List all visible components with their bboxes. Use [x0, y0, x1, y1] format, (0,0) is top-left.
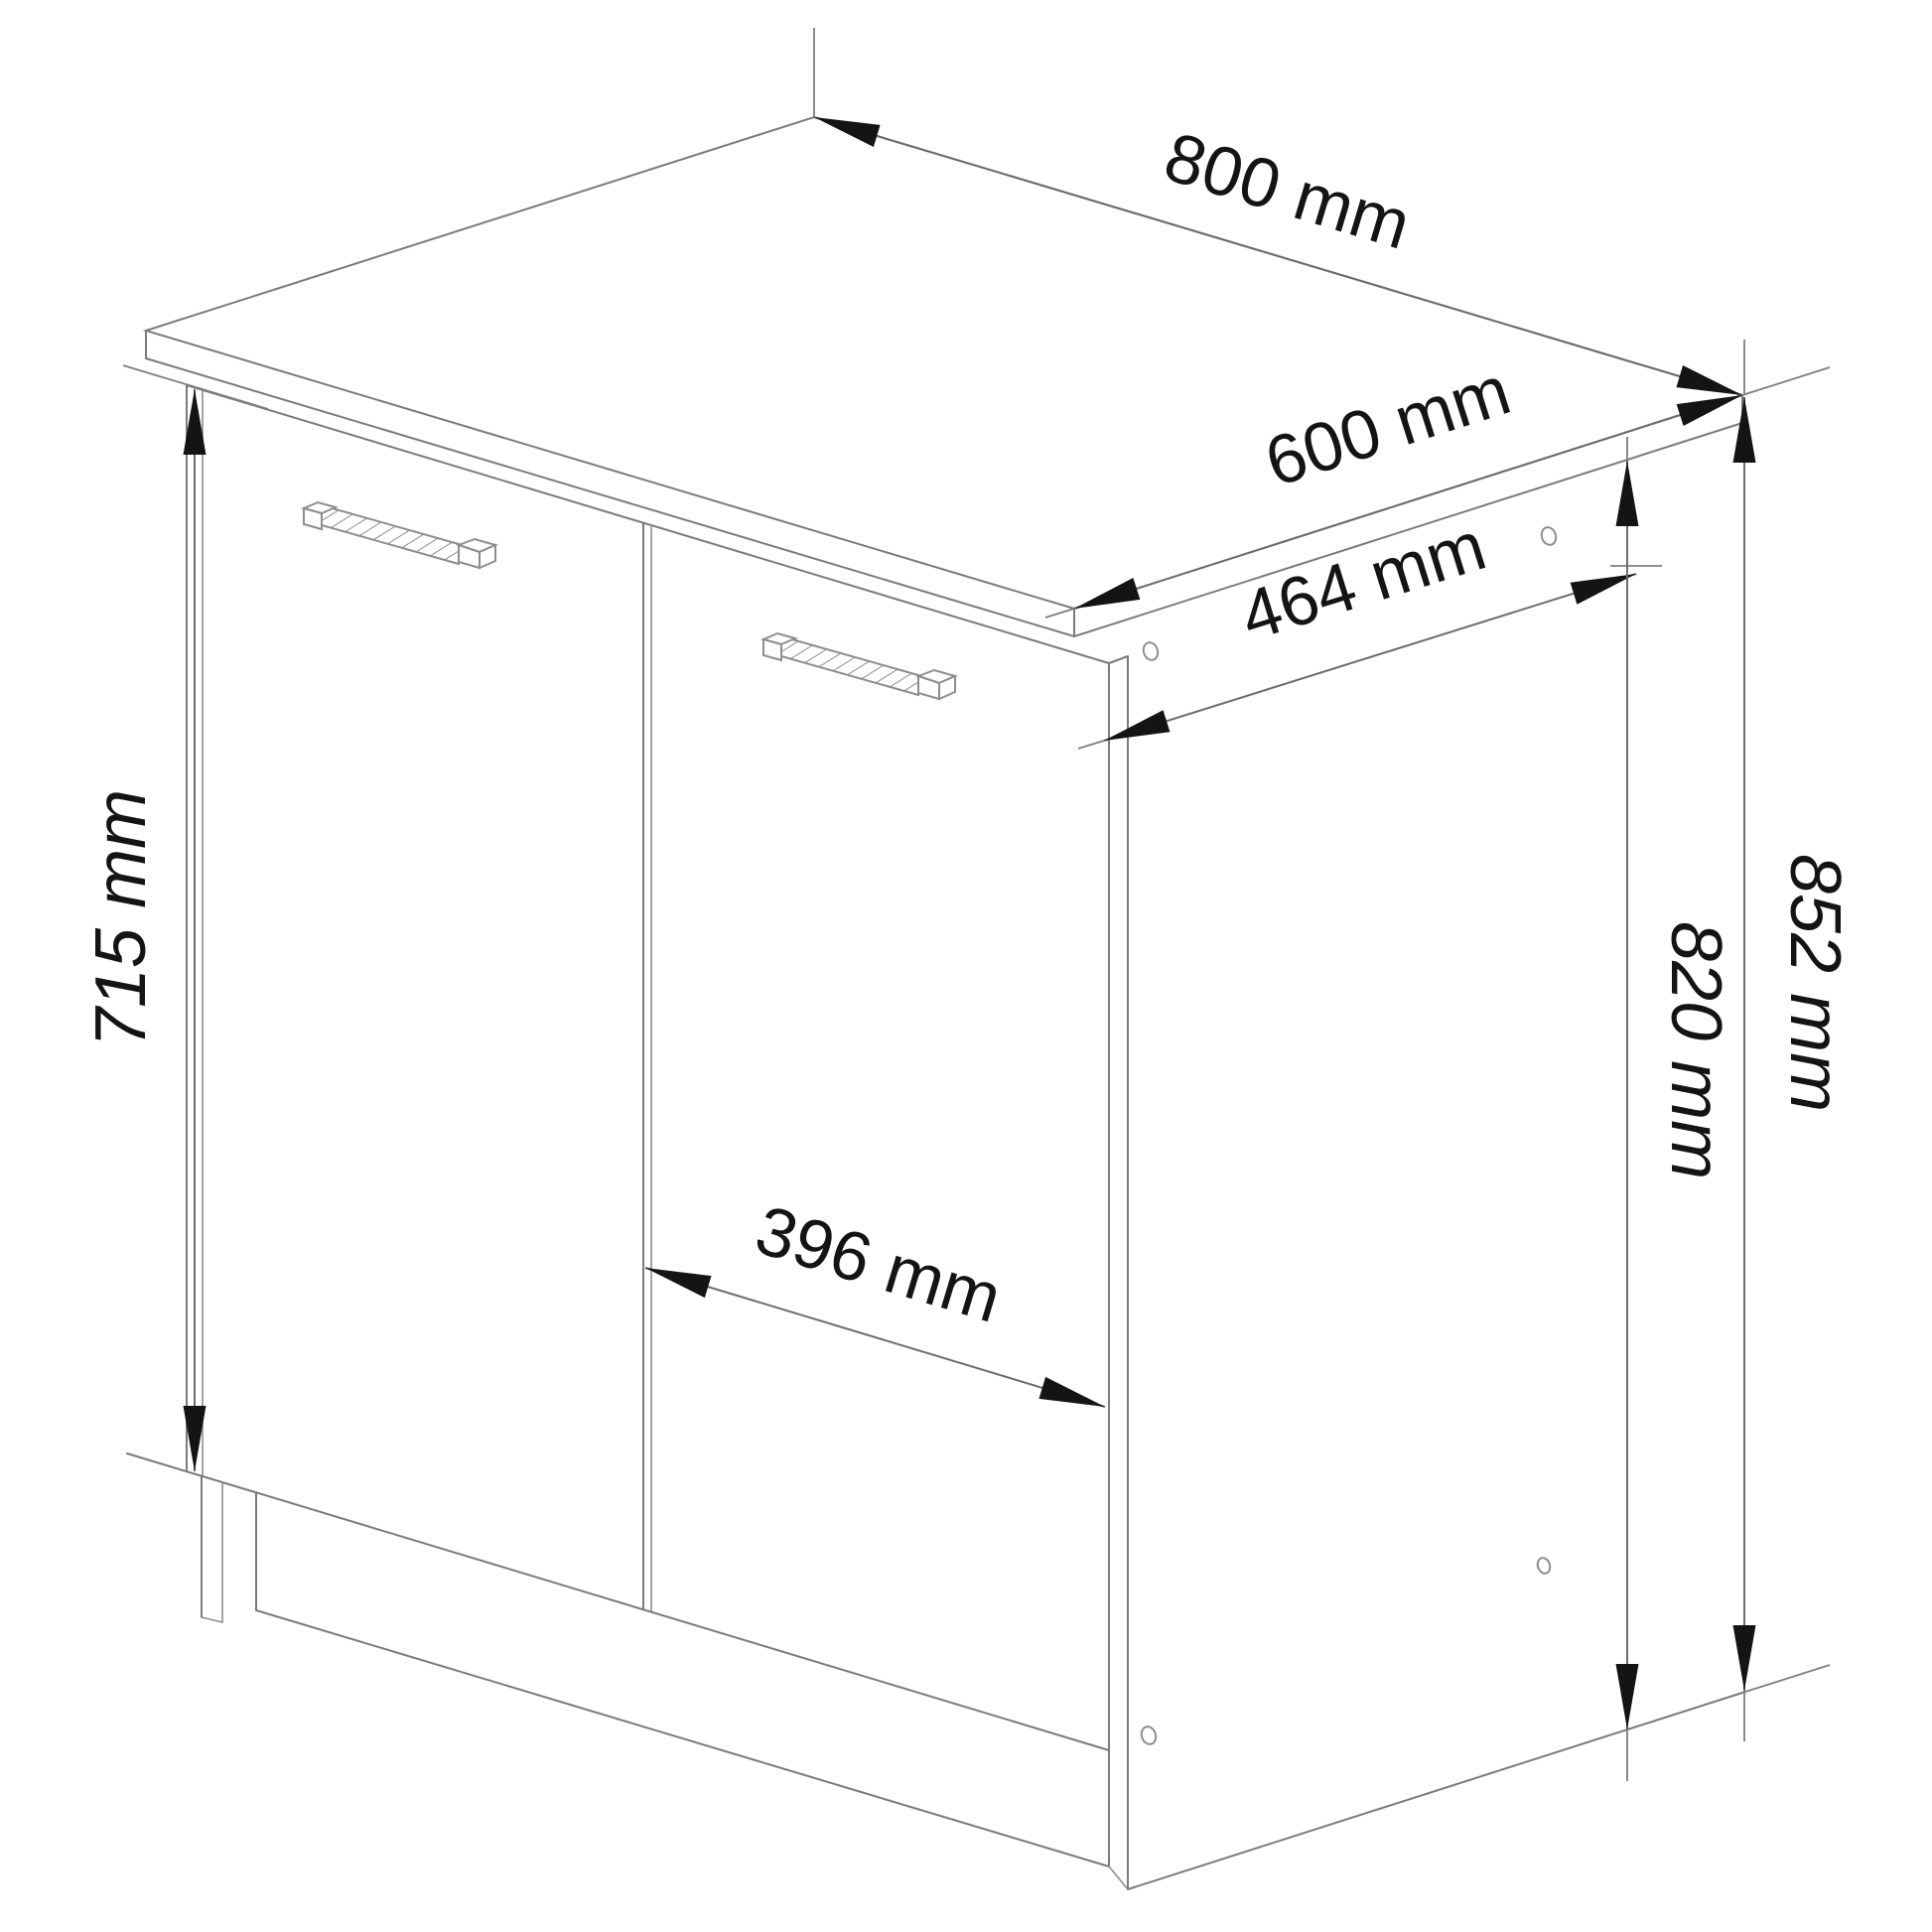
- dimension-door-height-label: 715 mm: [81, 789, 161, 1047]
- plinth-left-bottom-connector: [202, 1617, 222, 1622]
- panel-hole-bottom-front: [1140, 1725, 1159, 1745]
- plinth: [202, 1476, 1128, 1889]
- front-doors: [127, 385, 1109, 1866]
- dimension-extension-line: [1078, 741, 1104, 749]
- dimension-width-label: 800 mm: [1157, 117, 1420, 263]
- panel-hole-top-front: [1142, 640, 1161, 661]
- dimension-width-800: 800 mm: [814, 28, 1742, 395]
- side-panel-bottom-extension: [1742, 1665, 1830, 1693]
- dimension-door-height-715: 715 mm: [81, 365, 268, 1471]
- panel-hole-top-back: [1540, 525, 1559, 546]
- door-bottom-edge: [127, 1453, 1109, 1750]
- plinth-bottom-edge: [256, 1610, 1109, 1866]
- cabinet-dimension-diagram: 800 mm 600 mm 464 mm 715 mm 396 mm 820 m…: [0, 0, 1932, 1932]
- dimension-total-height-label: 852 mm: [1775, 854, 1855, 1112]
- diagram-canvas: 800 mm 600 mm 464 mm 715 mm 396 mm 820 m…: [0, 0, 1932, 1932]
- side-panel: [1109, 525, 1830, 1889]
- plinth-right-bottom-connector: [1109, 1866, 1128, 1889]
- left-door-handle: [304, 502, 495, 568]
- panel-hole-bottom-back: [1536, 1557, 1552, 1576]
- dimension-inner-depth-464: 464 mm: [1078, 506, 1662, 749]
- right-door-handle: [763, 633, 955, 699]
- dimension-body-height-820: 820 mm: [1627, 437, 1735, 1781]
- dimension-body-height-label: 820 mm: [1656, 921, 1735, 1179]
- dimension-door-width-396: 396 mm: [645, 1190, 1105, 1407]
- side-panel-top-connector: [1109, 656, 1128, 663]
- dimension-door-width-label: 396 mm: [748, 1190, 1011, 1337]
- dimension-extension-line: [1045, 609, 1074, 618]
- side-panel-bottom-edge: [1128, 1693, 1742, 1889]
- dimension-total-height-852: 852 mm: [1744, 340, 1855, 1741]
- countertop-front-bottom-edge: [146, 358, 1074, 636]
- dimension-inner-depth-label: 464 mm: [1232, 506, 1495, 655]
- dimension-extension-line: [1742, 367, 1830, 395]
